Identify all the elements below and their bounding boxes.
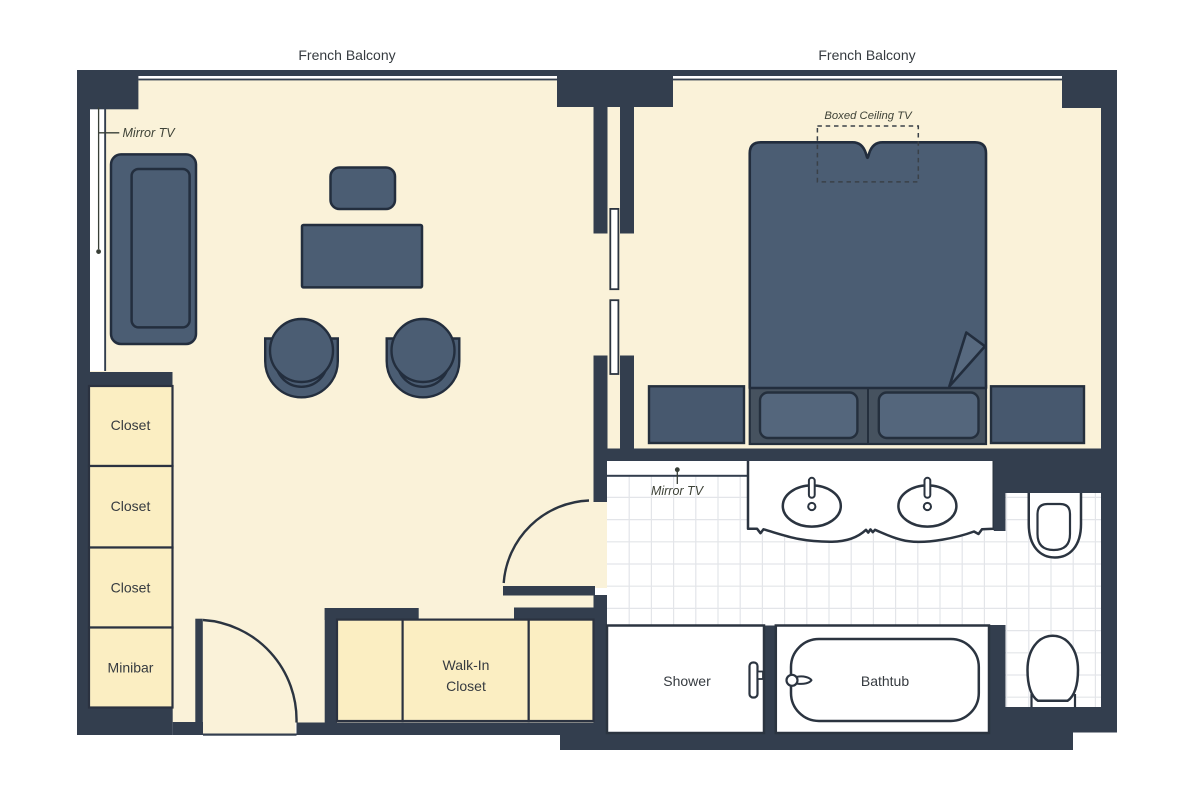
svg-text:French Balcony: French Balcony [818,47,915,63]
svg-text:Shower: Shower [663,673,711,689]
svg-text:Closet: Closet [446,678,486,694]
svg-text:Closet: Closet [111,417,151,433]
svg-text:Walk-In: Walk-In [443,657,490,673]
svg-text:French Balcony: French Balcony [298,47,395,63]
svg-text:Closet: Closet [111,580,151,596]
svg-text:Bathtub: Bathtub [861,673,909,689]
svg-text:Mirror TV: Mirror TV [651,484,705,498]
svg-text:Minibar: Minibar [108,660,154,676]
svg-text:Mirror TV: Mirror TV [123,126,177,140]
svg-text:Boxed Ceiling TV: Boxed Ceiling TV [824,110,913,122]
svg-text:Closet: Closet [111,498,151,514]
